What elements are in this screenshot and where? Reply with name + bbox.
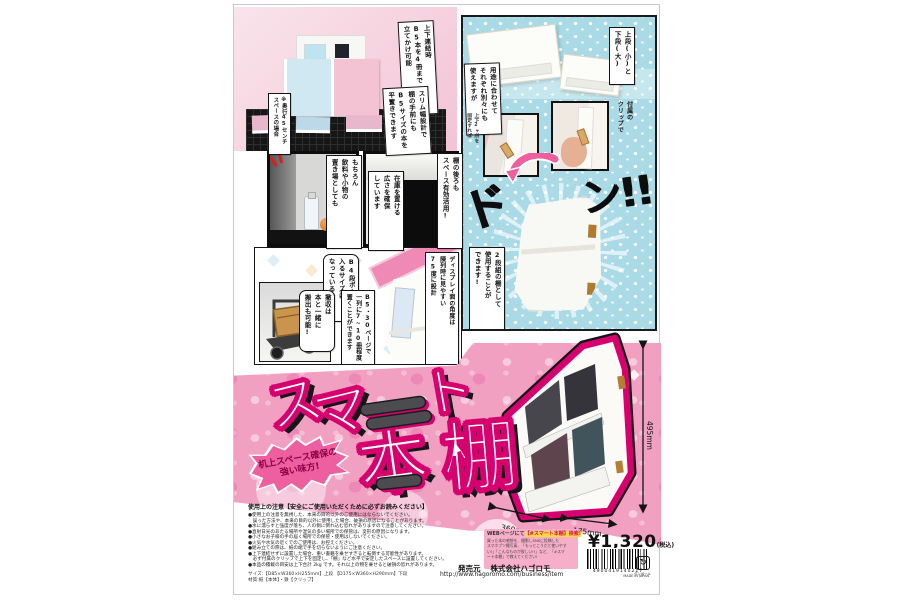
bubble-carry-out: 撤収は 本と一緒に 搬出も可能! [299, 290, 335, 352]
bottle [304, 196, 319, 230]
bubble-personal-storage: もちろん 飲料や小物の 置き場としても [326, 155, 362, 249]
promo-title-highlight: 【#スマート本棚】検索! [525, 531, 581, 537]
usage-notes-title: 使用上の注意【安全にご使用いただくために必ずお読みください】 [248, 502, 470, 511]
pink-arrow [503, 153, 561, 185]
flat-book [346, 115, 382, 132]
title-char-hon: 本 [353, 422, 432, 501]
bubble-tiers: 上段(小)と 下段(大) [609, 27, 635, 85]
bubble-flat-placement: スリム幅設計で 棚の手前にも B5サイズの本を 平置きできます [382, 86, 432, 156]
bubble-two-tier-result: 2段組の棚として 使用することが できます! [469, 247, 505, 331]
label-fix: 上下2ヶ所を 固定すれば [465, 113, 479, 165]
flyer-sheet: 上下連結時 B5本を4冊まで 立てかけ可能 スリム幅設計で 棚の手前にも B5サ… [233, 4, 660, 595]
material-spec: 材質:紙【本体】・鉄【クリップ】 [248, 578, 470, 584]
price-tax: (税込) [657, 542, 675, 549]
promo-title-pre: WEBページにて [487, 531, 525, 537]
cardboard-recycle-icon: ↻ [636, 556, 650, 570]
standing-book-blue [284, 59, 332, 116]
note-depth: ※奥行45センチ スペースの場合 [268, 93, 291, 155]
bubble-capacity: B5・30ページで 一列に7~10冊程度 置くことができます [341, 290, 375, 365]
product-package-image: 上下連結時 B5本を4冊まで 立てかけ可能 スリム幅設計で 棚の手前にも B5サ… [0, 0, 900, 600]
stand-shelf-line [521, 244, 595, 254]
publisher-url: http://www.hagoromo.com/business/item [440, 571, 563, 578]
sfx-don-right: ン!! [579, 170, 654, 219]
title-char-dana: 棚 [439, 416, 521, 498]
flat-book [296, 117, 330, 134]
sparkle [305, 264, 318, 277]
bubble-behind-shelf: 棚の後ろも スペース有効活用! [437, 153, 463, 249]
usage-note: ●本品の積載の目安は上下合計 2kg です。それ以上の物を乗せると破損の恐れがあ… [248, 563, 470, 569]
cardboard-lip [565, 77, 614, 92]
mini-cover-dark [335, 44, 349, 58]
bubble-display-angle: ディスプレイ面の角度は 陳列時に見やすい 75度に設計 [425, 252, 459, 365]
promo-line: スマホブツ撮写真、「もっとこうだと使いやす [487, 543, 575, 549]
sparkle [267, 254, 280, 267]
sfx-don-left: ド [461, 179, 513, 236]
standing-book-pink [331, 59, 379, 116]
usage-note: 必ず付属のクリップで上下を固定し、「棚」など水平で安定したスペースに設置してくだ… [248, 557, 470, 563]
usage-notes: 使用上の注意【安全にご使用いただくために必ずお読みください】 ●使用上の注意を無… [248, 502, 470, 583]
dim-height: 495mm [645, 421, 654, 450]
stand-notch [588, 225, 597, 238]
bottle-cap [308, 192, 316, 199]
recycle-label: ダンボール [634, 571, 651, 576]
comic-panel: B4段ボールに 入るサイズに なっているので 撤収は 本と一緒に 搬出も可能! … [254, 247, 462, 365]
label-clip: 付属の クリップで [615, 101, 634, 145]
bubble-stock-space: 在庫を置ける 広さを確保 しています [368, 171, 404, 251]
assembly-panel: 上段(小)と 下段(大) 用途に合わせて それぞれ別々にも 使えますが 付属の … [461, 15, 657, 331]
